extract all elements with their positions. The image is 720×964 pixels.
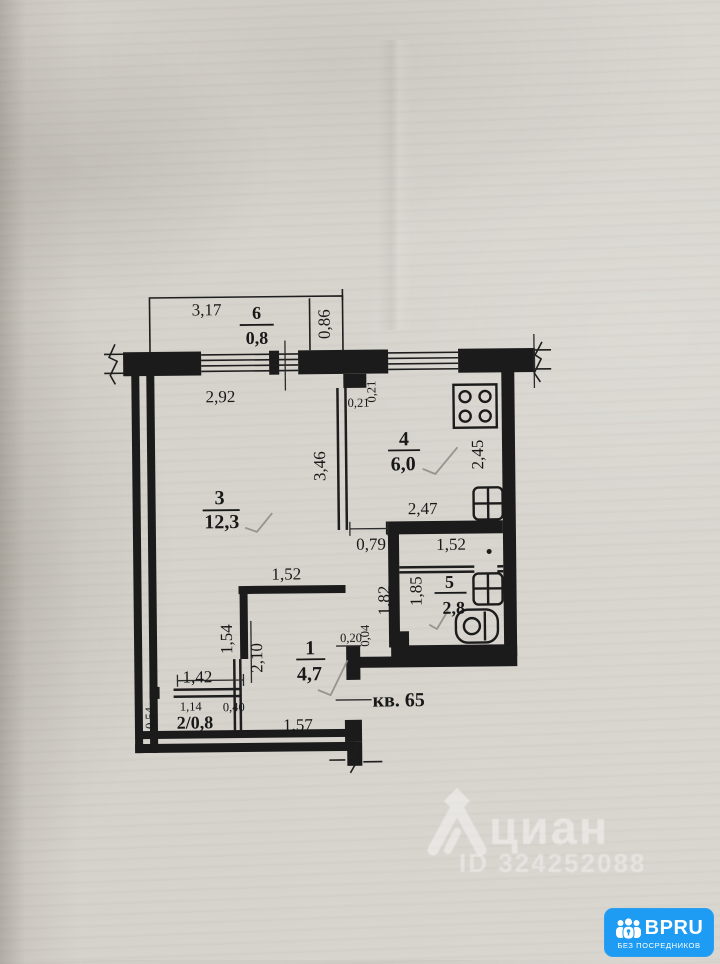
dim-hall-bottom: 1,57 (283, 715, 313, 734)
dim-wall-stub-d: 0,04 (358, 624, 372, 647)
room5-area: 2,8 (442, 598, 465, 618)
badge-brand: BPRU (645, 918, 704, 938)
dim-bath-side: 1,85 (406, 576, 425, 606)
kitchen-sink-icon (473, 487, 502, 519)
dim-hall-wall-b: 2,10 (247, 643, 266, 673)
room5-number: 5 (445, 572, 454, 592)
floor-plan-drawing: 3,17 6 0,8 0,86 2,92 0,21 0,21 4 6,0 2,4… (0, 0, 720, 964)
room2-label: 2/0,8 (177, 712, 214, 732)
bath-sink-icon (473, 573, 502, 604)
dim-hall-wall-a: 1,54 (217, 624, 236, 654)
dim-vestibule-width: 1,52 (436, 535, 466, 554)
dim-balcony-depth: 0,86 (315, 309, 334, 339)
wall-break-symbols (104, 340, 555, 776)
room3-number: 3 (214, 487, 224, 509)
dim-kitchen-width: 2,47 (408, 499, 438, 518)
dim-closet-door: 0,40 (223, 700, 245, 714)
dim-balcony-width: 3,17 (192, 300, 222, 319)
dim-kitchen-doorway: 0,79 (356, 535, 386, 554)
door-pivot-dot (487, 549, 492, 554)
room4-area: 6,0 (391, 453, 416, 475)
room4-number: 4 (399, 428, 409, 450)
dim-room3-top: 2,92 (206, 387, 236, 406)
room1-number: 1 (305, 637, 315, 659)
dim-notch-d: 0,21 (364, 381, 378, 403)
room1-area: 4,7 (297, 663, 322, 685)
dim-kitchen-side: 2,45 (468, 440, 487, 470)
dim-room3-bottom: 1,52 (271, 564, 301, 583)
dim-hall-side: 1,82 (374, 586, 393, 616)
apartment-label: кв. 65 (372, 689, 425, 712)
badge-tagline: БЕЗ ПОСРЕДНИКОВ (617, 941, 700, 950)
bpru-badge: BPRU БЕЗ ПОСРЕДНИКОВ (604, 908, 714, 957)
watermark-brand: циан (489, 804, 609, 851)
dim-closet-top: 1,42 (182, 667, 212, 686)
people-lock-icon (615, 918, 642, 939)
watermark-listing-id: ID 324252088 (459, 850, 646, 876)
dim-room3-side: 3,46 (310, 451, 329, 481)
room6-area: 0,8 (246, 328, 269, 348)
room3-area: 12,3 (204, 511, 239, 533)
stove-icon (453, 384, 496, 427)
dim-closet-side: 0,54 (143, 706, 157, 729)
cian-pin-icon (424, 784, 488, 856)
room6-number: 6 (252, 303, 261, 323)
